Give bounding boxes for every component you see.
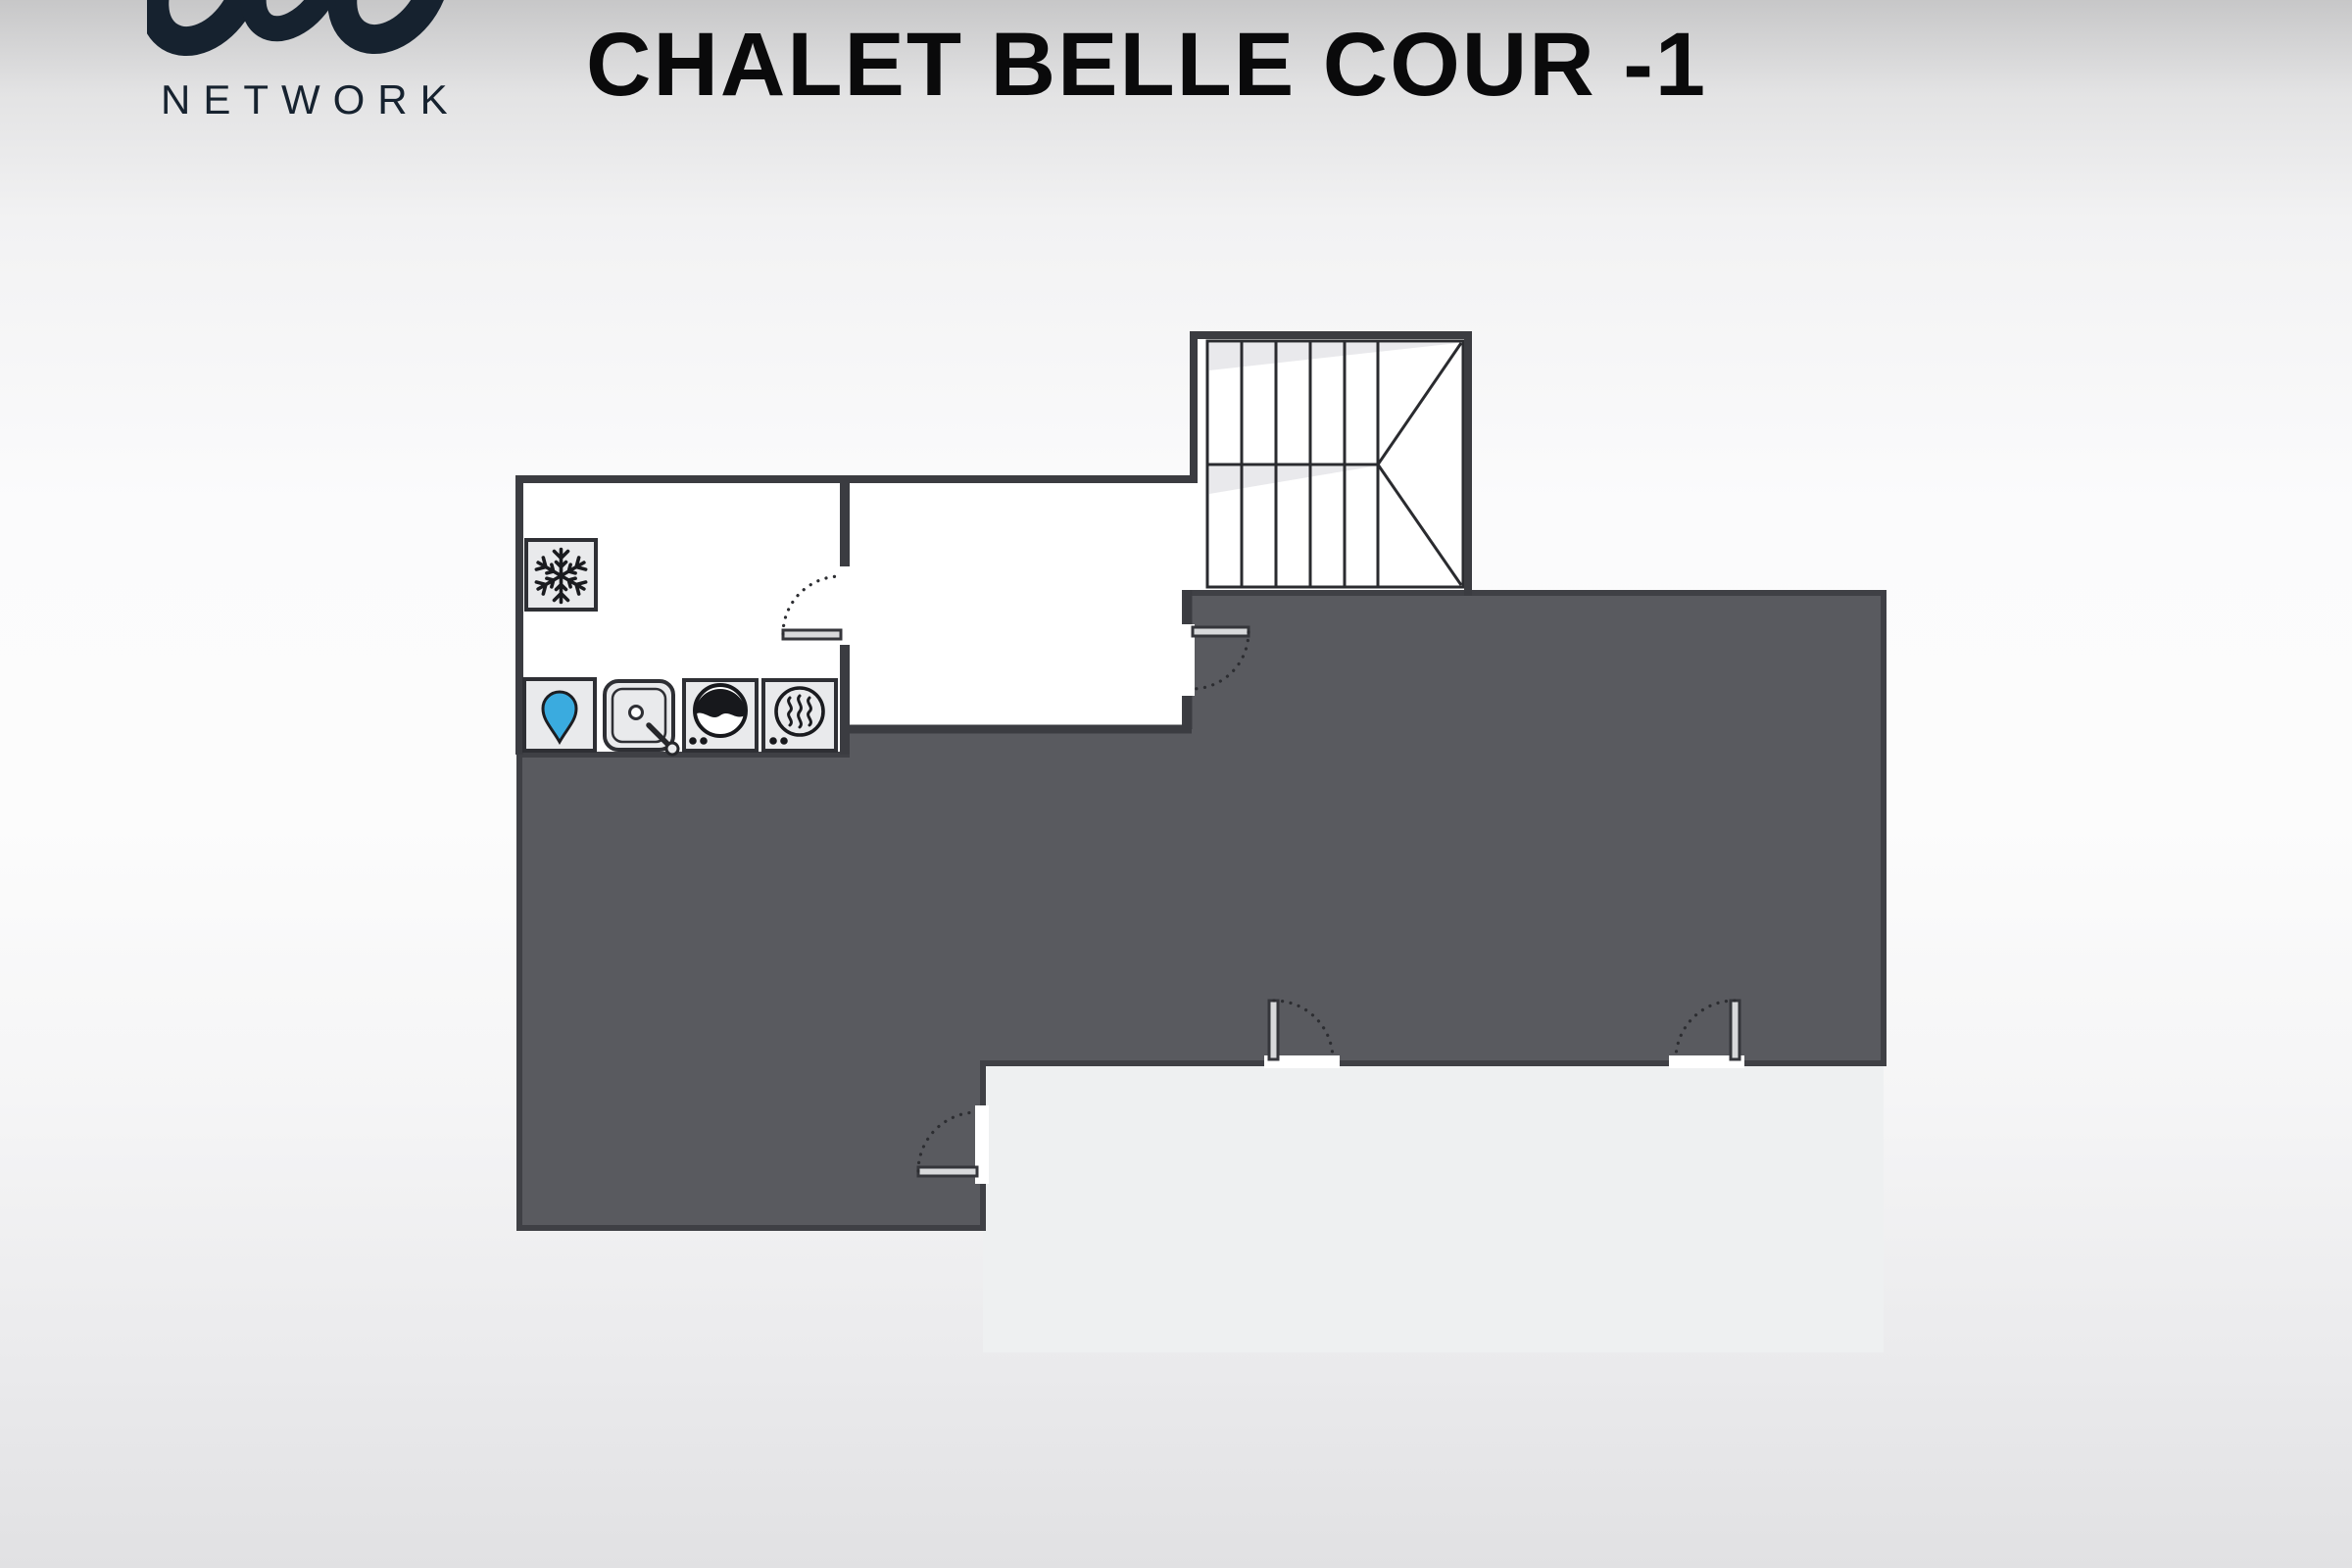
freezer-snowflake-icon [526, 540, 596, 610]
floorplan [0, 0, 2352, 1568]
door-leaf-lower-right [1731, 1001, 1739, 1059]
door-leaf-dark-lower [918, 1167, 977, 1176]
door-leaf-utility [783, 630, 841, 639]
water-drop-icon [524, 679, 595, 751]
tumble-dryer-icon [763, 680, 836, 751]
washing-machine-icon [684, 680, 757, 751]
page: NETWORK CHALET BELLE COUR -1 [0, 0, 2352, 1568]
door-leaf-lower-left [1269, 1001, 1278, 1059]
sink-icon [605, 681, 678, 755]
lower-level-area [983, 1063, 1884, 1352]
staircase [1194, 335, 1468, 596]
door-leaf-hallway-dark [1193, 627, 1249, 636]
